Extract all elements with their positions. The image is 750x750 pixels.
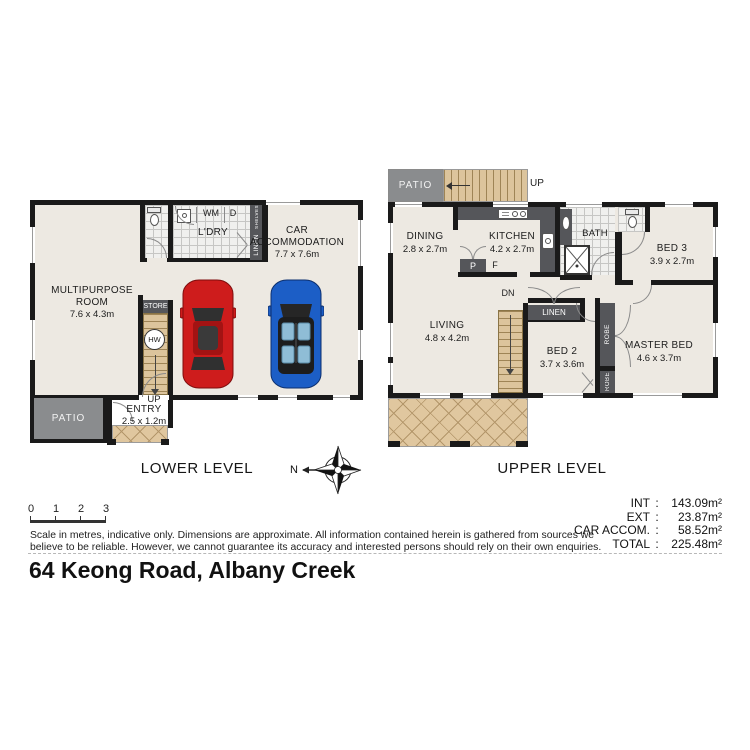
burner-icon bbox=[520, 211, 526, 217]
window bbox=[395, 202, 422, 207]
scale-tick-label: 3 bbox=[103, 503, 109, 515]
living-label: LIVING bbox=[430, 320, 465, 331]
window bbox=[543, 393, 583, 398]
scale-bar-line bbox=[30, 520, 106, 523]
page-title: 64 Keong Road, Albany Creek bbox=[29, 557, 355, 584]
window bbox=[238, 395, 258, 400]
window bbox=[30, 227, 35, 263]
deck-post bbox=[516, 441, 528, 447]
linen-cabinet: LINEN bbox=[528, 305, 580, 320]
dn-label: DN bbox=[502, 288, 515, 298]
entry-dims: 2.5 x 1.2m bbox=[122, 416, 166, 427]
shelves-cabinet: SHELVES bbox=[250, 205, 262, 229]
upper-level-plan: PATIO UP P bbox=[388, 165, 718, 448]
shower bbox=[564, 245, 590, 275]
compass-rose-icon bbox=[300, 444, 362, 498]
window bbox=[633, 393, 682, 398]
upper-patio: PATIO bbox=[388, 169, 443, 202]
wall bbox=[615, 232, 622, 282]
area-label: CAR ACCOM. bbox=[556, 524, 650, 538]
wall bbox=[140, 205, 145, 262]
stair-direction bbox=[510, 315, 511, 371]
deck-post bbox=[450, 441, 470, 447]
living-dims: 4.8 x 4.2m bbox=[425, 333, 469, 344]
stair-arrow-icon bbox=[446, 182, 452, 190]
master-bed-dims: 4.6 x 3.7m bbox=[637, 353, 681, 364]
deck-post bbox=[388, 441, 400, 447]
basin-icon bbox=[562, 216, 570, 230]
burner-icon bbox=[512, 211, 518, 217]
kitchen-dims: 4.2 x 2.7m bbox=[490, 244, 534, 255]
car-accom-label: CAR bbox=[286, 225, 308, 236]
kitchen-label: KITCHEN bbox=[489, 231, 535, 242]
wall bbox=[140, 258, 147, 262]
window bbox=[266, 200, 300, 205]
hw-label: HW bbox=[148, 335, 161, 344]
grill-icon bbox=[502, 212, 509, 213]
area-value: 58.52m² bbox=[664, 524, 722, 538]
store-cabinet: STORE bbox=[143, 300, 168, 313]
robe-label: ROBE bbox=[604, 324, 611, 344]
lower-level-title: LOWER LEVEL bbox=[141, 460, 253, 477]
area-value: 143.09m² bbox=[664, 497, 722, 511]
laundry-label: L'DRY bbox=[198, 227, 228, 238]
wall bbox=[168, 300, 173, 395]
wall bbox=[168, 400, 173, 428]
disclaimer-line1: Scale in metres, indicative only. Dimens… bbox=[30, 530, 601, 542]
lower-patio: PATIO bbox=[30, 398, 107, 443]
wall bbox=[530, 272, 555, 277]
wall bbox=[528, 320, 580, 322]
scale-tick-label: 2 bbox=[78, 503, 84, 515]
window bbox=[665, 202, 693, 207]
multipurpose-label: MULTIPURPOSE bbox=[51, 285, 133, 296]
washing-machine-label: WM bbox=[203, 208, 219, 218]
patio-label: PATIO bbox=[399, 180, 433, 191]
fridge-label: F bbox=[492, 260, 498, 270]
bath-label: BATH bbox=[582, 228, 608, 239]
dining-dims: 2.8 x 2.7m bbox=[403, 244, 447, 255]
up-label: UP bbox=[530, 178, 544, 189]
table-row: TOTAL : 225.48m² bbox=[556, 538, 722, 552]
window bbox=[358, 220, 363, 266]
toilet-icon bbox=[625, 209, 639, 215]
disclaimer-line2: believe to be reliable. However, we cann… bbox=[30, 542, 601, 554]
scale-tick-label: 1 bbox=[53, 503, 59, 515]
window bbox=[713, 227, 718, 257]
bed2-label: BED 2 bbox=[547, 346, 577, 357]
window bbox=[388, 363, 393, 385]
divider bbox=[196, 207, 197, 223]
blue-car bbox=[268, 278, 324, 390]
window bbox=[713, 323, 718, 357]
area-label: EXT bbox=[556, 511, 650, 525]
porch-post bbox=[161, 439, 169, 445]
bed3-dims: 3.9 x 2.7m bbox=[650, 256, 694, 267]
table-row: EXT : 23.87m² bbox=[556, 511, 722, 525]
wall bbox=[458, 272, 517, 277]
car-accom-label2: ACCOMMODATION bbox=[250, 237, 344, 248]
disclaimer: Scale in metres, indicative only. Dimens… bbox=[30, 530, 601, 554]
pantry-label: P bbox=[470, 261, 476, 271]
dining-label: DINING bbox=[407, 231, 444, 242]
linen-label: LINEN bbox=[542, 308, 566, 317]
master-bed-label: MASTER BED bbox=[625, 340, 693, 351]
robe-cabinet: ROBE bbox=[600, 371, 615, 393]
bed3-label: BED 3 bbox=[657, 243, 687, 254]
floorplan-page: WM D L'DRY SHELVES LINEN STORE HW MULTIP… bbox=[0, 0, 750, 750]
hot-water-icon: HW bbox=[144, 329, 165, 350]
divider bbox=[224, 207, 225, 223]
wall bbox=[651, 280, 713, 285]
wall bbox=[615, 280, 633, 285]
porch-post bbox=[107, 439, 116, 445]
toilet-icon bbox=[628, 216, 637, 228]
patio-label: PATIO bbox=[52, 413, 86, 424]
stair-direction bbox=[452, 185, 470, 186]
scale-tick-label: 0 bbox=[28, 503, 34, 515]
toilet-icon bbox=[150, 214, 159, 226]
north-label: N bbox=[290, 464, 298, 476]
area-value: 23.87m² bbox=[664, 511, 722, 525]
table-row: CAR ACCOM. : 58.52m² bbox=[556, 524, 722, 538]
window bbox=[388, 323, 393, 357]
window bbox=[278, 395, 297, 400]
store-label: STORE bbox=[144, 303, 168, 310]
wall bbox=[262, 205, 268, 262]
area-colon: : bbox=[650, 511, 664, 525]
multipurpose-dims: 7.6 x 4.3m bbox=[70, 309, 114, 320]
pantry-cabinet: P bbox=[460, 259, 486, 272]
wall bbox=[645, 202, 650, 232]
table-row: INT : 143.09m² bbox=[556, 497, 722, 511]
toilet-icon bbox=[147, 207, 161, 213]
wall bbox=[168, 205, 173, 258]
lower-level-plan: WM D L'DRY SHELVES LINEN STORE HW MULTIP… bbox=[30, 200, 363, 446]
grill-icon bbox=[502, 215, 509, 216]
divider bbox=[28, 553, 722, 554]
robe-label: ROBE bbox=[605, 372, 611, 391]
window bbox=[358, 330, 363, 360]
window bbox=[30, 320, 35, 360]
robe-cabinet: ROBE bbox=[600, 303, 615, 366]
bed2-dims: 3.7 x 3.6m bbox=[540, 359, 584, 370]
upper-level-title: UPPER LEVEL bbox=[497, 460, 606, 477]
area-colon: : bbox=[650, 497, 664, 511]
compass: N bbox=[290, 444, 362, 500]
window bbox=[388, 223, 393, 253]
sink-drain-icon bbox=[545, 238, 551, 244]
car-accom-dims: 7.7 x 7.6m bbox=[275, 249, 319, 260]
dryer-label: D bbox=[230, 208, 237, 218]
multipurpose-label2: ROOM bbox=[76, 297, 108, 308]
window bbox=[333, 395, 350, 400]
stair-arrow-icon bbox=[506, 369, 514, 375]
red-car bbox=[180, 278, 236, 390]
deck bbox=[388, 398, 528, 447]
area-label: INT bbox=[556, 497, 650, 511]
entry-porch bbox=[112, 425, 168, 443]
wall bbox=[560, 275, 592, 280]
shelves-label: SHELVES bbox=[254, 205, 259, 229]
area-colon: : bbox=[650, 538, 664, 552]
entry-label: ENTRY bbox=[126, 404, 161, 415]
area-label: TOTAL bbox=[556, 538, 650, 552]
area-colon: : bbox=[650, 524, 664, 538]
area-value: 225.48m² bbox=[664, 538, 722, 552]
area-table: INT : 143.09m² EXT : 23.87m² CAR ACCOM. … bbox=[556, 497, 722, 551]
